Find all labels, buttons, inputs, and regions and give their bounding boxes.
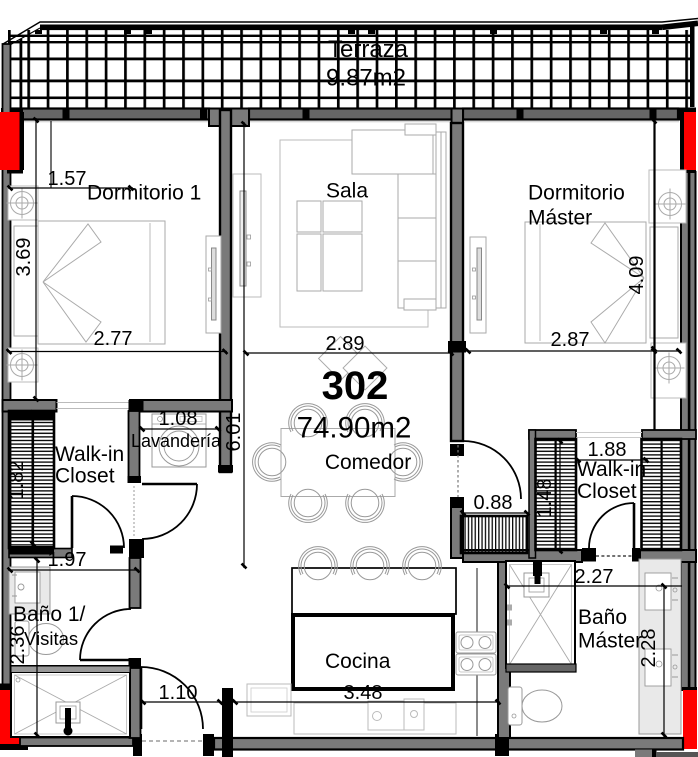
svg-text:Walk-in: Walk-in [55, 443, 124, 466]
svg-text:Comedor: Comedor [325, 451, 411, 474]
svg-text:Terraza: Terraza [328, 36, 409, 63]
svg-text:Baño 1/: Baño 1/ [13, 603, 86, 626]
svg-text:Baño: Baño [578, 606, 627, 629]
svg-text:1.10: 1.10 [159, 682, 198, 704]
svg-text:Closet: Closet [55, 465, 115, 488]
svg-text:Closet: Closet [577, 480, 637, 503]
svg-text:3.48: 3.48 [344, 682, 383, 704]
svg-text:Cocina: Cocina [325, 650, 391, 673]
svg-text:9.87m2: 9.87m2 [326, 65, 406, 92]
svg-text:1.82: 1.82 [6, 461, 28, 500]
svg-text:Máster: Máster [578, 630, 642, 653]
svg-text:0.88: 0.88 [474, 492, 513, 514]
svg-text:2.77: 2.77 [94, 328, 133, 350]
svg-text:1.97: 1.97 [48, 549, 87, 571]
svg-text:2.87: 2.87 [551, 329, 590, 351]
svg-text:6.01: 6.01 [223, 413, 245, 452]
svg-text:3.69: 3.69 [13, 238, 35, 277]
svg-text:74.90m2: 74.90m2 [297, 412, 412, 445]
svg-text:Sala: Sala [326, 180, 368, 203]
svg-text:Lavandería: Lavandería [131, 431, 222, 451]
svg-text:1.57: 1.57 [48, 168, 87, 190]
svg-text:1.08: 1.08 [159, 408, 198, 430]
svg-text:Dormitorio: Dormitorio [528, 182, 625, 205]
svg-text:Walk-in: Walk-in [577, 458, 646, 481]
svg-text:Visitas: Visitas [24, 628, 78, 649]
svg-text:2.27: 2.27 [575, 566, 614, 588]
svg-text:4.09: 4.09 [626, 256, 648, 295]
svg-text:302: 302 [322, 364, 389, 408]
svg-text:Máster: Máster [528, 207, 592, 230]
svg-text:Dormitorio 1: Dormitorio 1 [87, 182, 201, 205]
svg-text:2.89: 2.89 [326, 333, 365, 355]
svg-text:1.48: 1.48 [534, 479, 556, 518]
